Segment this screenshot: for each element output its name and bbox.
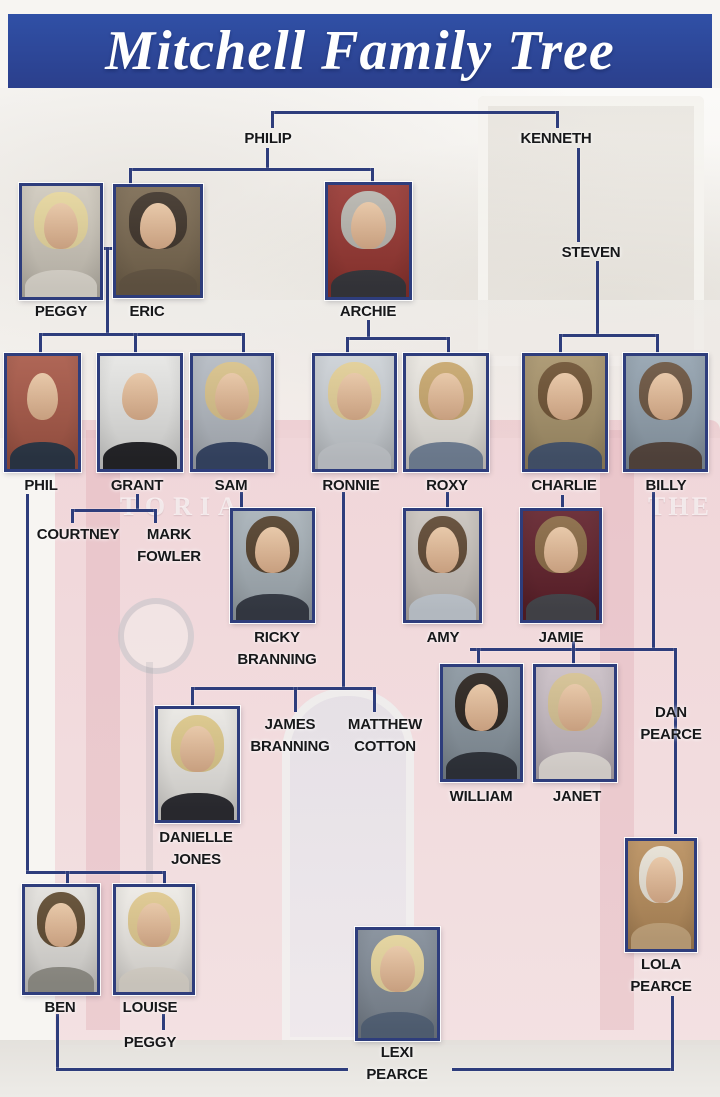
tree-line bbox=[26, 494, 29, 873]
tree-line bbox=[191, 687, 194, 706]
tree-line bbox=[71, 509, 74, 523]
name-label-sam: SAM bbox=[215, 475, 248, 497]
portrait-william bbox=[440, 664, 523, 782]
tree-line bbox=[294, 687, 297, 712]
tree-line bbox=[596, 261, 599, 336]
portrait-grant bbox=[97, 353, 183, 472]
tree-line bbox=[242, 333, 245, 354]
tree-line bbox=[271, 111, 274, 128]
tree-line bbox=[106, 247, 109, 336]
name-label-grant: GRANT bbox=[111, 475, 163, 497]
tree-line bbox=[452, 1068, 674, 1071]
name-label-roxy: ROXY bbox=[426, 475, 468, 497]
background-lamp bbox=[118, 598, 194, 674]
page-title: Mitchell Family Tree bbox=[105, 23, 614, 79]
tree-line bbox=[191, 687, 376, 690]
name-label-janet: JANET bbox=[553, 786, 601, 808]
portrait-jamie bbox=[520, 508, 602, 623]
tree-line bbox=[559, 334, 562, 354]
tree-line bbox=[134, 333, 137, 354]
tree-line bbox=[129, 168, 374, 171]
name-label-matthew-cotton: MATTHEWCOTTON bbox=[348, 714, 422, 758]
portrait-billy bbox=[623, 353, 708, 472]
tree-line bbox=[26, 871, 166, 874]
name-label-peggy: PEGGY bbox=[35, 301, 87, 323]
tree-line bbox=[56, 1068, 348, 1071]
name-label-courtney: COURTNEY bbox=[37, 524, 120, 546]
portrait-lola-pearce bbox=[625, 838, 697, 952]
name-label-lexi-pearce: LEXIPEARCE bbox=[366, 1042, 427, 1086]
title-banner: Mitchell Family Tree bbox=[8, 14, 712, 88]
tree-line bbox=[447, 337, 450, 354]
name-label-kenneth: KENNETH bbox=[520, 128, 591, 150]
name-label-mark-fowler: MARKFOWLER bbox=[137, 524, 201, 568]
tree-line bbox=[577, 148, 580, 242]
portrait-sam bbox=[190, 353, 274, 472]
name-label-phil: PHIL bbox=[24, 475, 57, 497]
name-label-steven: STEVEN bbox=[562, 242, 621, 264]
tree-line bbox=[56, 1014, 59, 1070]
tree-line bbox=[342, 492, 345, 689]
name-label-james-branning: JAMESBRANNING bbox=[250, 714, 329, 758]
portrait-amy bbox=[403, 508, 482, 623]
portrait-peggy bbox=[19, 183, 103, 300]
name-label-archie: ARCHIE bbox=[340, 301, 396, 323]
name-label-dan-pearce: DANPEARCE bbox=[640, 702, 701, 746]
name-label-jamie: JAMIE bbox=[539, 627, 584, 649]
tree-line bbox=[346, 337, 450, 340]
portrait-janet bbox=[533, 664, 617, 782]
tree-line bbox=[154, 509, 157, 523]
name-label-philip: PHILIP bbox=[244, 128, 291, 150]
tree-line bbox=[163, 871, 166, 885]
portrait-ricky-branning bbox=[230, 508, 315, 623]
portrait-ronnie bbox=[312, 353, 397, 472]
name-label-lola-pearce: LOLAPEARCE bbox=[630, 954, 691, 998]
tree-line bbox=[671, 996, 674, 1071]
tree-line bbox=[556, 111, 559, 128]
name-label-danielle-jones: DANIELLEJONES bbox=[159, 827, 232, 871]
name-label-ricky-branning: RICKYBRANNING bbox=[237, 627, 316, 671]
tree-line bbox=[66, 871, 69, 885]
tree-line bbox=[266, 148, 269, 170]
name-label-ronnie: RONNIE bbox=[322, 475, 379, 497]
portrait-danielle-jones bbox=[155, 706, 240, 823]
name-label-louise: LOUISE bbox=[123, 997, 178, 1019]
portrait-archie bbox=[325, 182, 412, 300]
tree-line bbox=[559, 334, 659, 337]
tree-line bbox=[656, 334, 659, 354]
family-tree-infographic: TORIA THE Mitchell Family Tree PEGGYERIC… bbox=[0, 0, 720, 1097]
tree-line bbox=[652, 492, 655, 651]
portrait-roxy bbox=[403, 353, 489, 472]
tree-line bbox=[39, 333, 245, 336]
name-label-amy: AMY bbox=[427, 627, 460, 649]
tree-line bbox=[71, 509, 157, 512]
portrait-charlie bbox=[522, 353, 608, 472]
tree-line bbox=[346, 337, 349, 354]
name-label-ben: BEN bbox=[44, 997, 75, 1019]
portrait-louise bbox=[113, 884, 195, 995]
name-label-peggy-jr: PEGGY bbox=[124, 1032, 176, 1054]
portrait-ben bbox=[22, 884, 100, 995]
tree-line bbox=[271, 111, 559, 114]
portrait-lexi-pearce bbox=[355, 927, 440, 1041]
tree-line bbox=[39, 333, 42, 354]
tree-line bbox=[477, 648, 480, 665]
portrait-eric bbox=[113, 184, 203, 298]
name-label-billy: BILLY bbox=[646, 475, 687, 497]
name-label-eric: ERIC bbox=[129, 301, 164, 323]
tree-line bbox=[373, 687, 376, 712]
name-label-william: WILLIAM bbox=[450, 786, 513, 808]
name-label-charlie: CHARLIE bbox=[531, 475, 596, 497]
portrait-phil bbox=[4, 353, 81, 472]
